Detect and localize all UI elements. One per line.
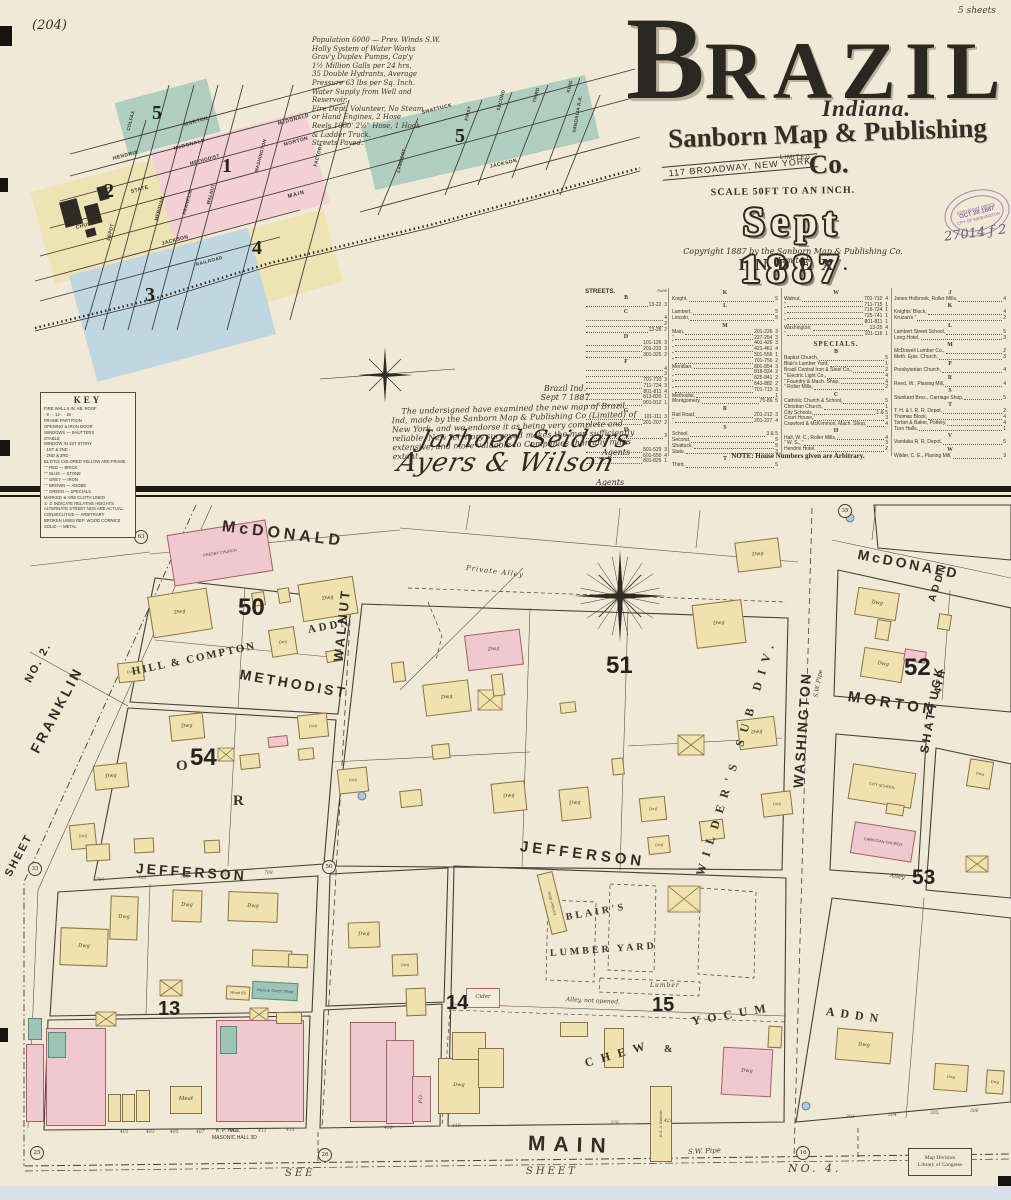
map-label: 409 (230, 1129, 239, 1134)
building: Dwg (109, 896, 139, 941)
building (399, 789, 423, 808)
building (204, 840, 221, 854)
building: Dwg (692, 599, 747, 649)
index-row: Jones Holbrook, Roller Mills,4 (894, 297, 1006, 303)
map-label: 54 (190, 744, 217, 772)
index-row: ” Roller Mills,2 (784, 385, 888, 391)
building: Dwg (491, 780, 528, 813)
map-label: 52 (904, 654, 931, 682)
building (406, 988, 427, 1017)
building (26, 1044, 44, 1122)
building (239, 753, 260, 770)
map-label: Lumber (650, 982, 680, 989)
index-row: SPECIALS. (784, 342, 888, 348)
building (28, 1018, 42, 1040)
building (267, 735, 288, 748)
building: Dwg (835, 1028, 894, 1065)
index-row: 13-28 2 (585, 328, 667, 334)
map-label: 709 (264, 871, 273, 876)
map-label: 50 (238, 594, 265, 622)
index-row: Stunkard Bros., Carriage Shop,5 (894, 396, 1006, 402)
map-label: 50 (322, 860, 336, 874)
building: Dwg (647, 835, 671, 855)
building: P.O. (412, 1076, 431, 1122)
index-divider (781, 288, 782, 456)
map-label: 320 (610, 1121, 619, 1126)
library-stamp-box: Map DivisionLibrary of Congress (908, 1148, 972, 1176)
index-row: Reed, W., Planing Mill,4 (894, 382, 1006, 388)
index-column-3: WWalnut,701-710 4”711-715 1”716-724 1”72… (784, 289, 888, 453)
building (122, 1094, 135, 1122)
map-label: 705 (180, 875, 189, 880)
building: Dwg (966, 758, 994, 789)
building (220, 1026, 237, 1054)
index-row: Kruzan's ”2 (894, 316, 1006, 322)
scan-backing-strip (0, 1186, 1011, 1200)
building: Meat (170, 1086, 202, 1114)
building (560, 1022, 588, 1037)
map-label: NO. 4. (788, 1162, 842, 1175)
scan-edge-mark (0, 178, 8, 192)
map-title: BRAZIL (626, 0, 1008, 121)
map-label: 407 (196, 1130, 205, 1135)
index-column-2: KKnight,5LLambert,5Lincoln,5MMain,201-22… (672, 289, 778, 469)
building: Paint & Carp't Shop (252, 981, 299, 1001)
building (937, 613, 952, 631)
map-label: 303 (846, 1115, 855, 1120)
map-label: 305 (930, 1111, 939, 1116)
map-label: 701 (96, 878, 105, 883)
map-label: 25 (30, 1146, 44, 1160)
building: Dwg (438, 1058, 480, 1114)
map-label: 418 (384, 1126, 393, 1131)
building (86, 843, 111, 861)
population-line: 35 Double Hydrants, Average (300, 70, 520, 79)
population-line: Fire Dept. Volunteer, No Steam (300, 105, 520, 114)
building: Dwg (422, 679, 472, 716)
building (134, 837, 155, 853)
building (767, 1026, 782, 1049)
building: Dwg (268, 626, 298, 658)
index-row: STREETS.PAGE (585, 289, 667, 295)
map-label: MAIN (528, 1132, 614, 1159)
map-label: O (176, 758, 188, 775)
building: Dwg (558, 787, 591, 822)
building (108, 1094, 121, 1122)
overview-label: 1 (222, 155, 232, 178)
population-line: Reservoir. (300, 96, 520, 105)
building (391, 661, 406, 682)
map-key-legend: KEY FIRE WALL 6 IN. AB. ROOF· 9 · · 12 ·… (40, 392, 136, 538)
building: Dwg (860, 647, 906, 683)
map-label: 15 (652, 994, 674, 1017)
building (386, 1040, 414, 1124)
building: Dwg (734, 537, 781, 572)
building: Wood Sh (226, 985, 251, 1000)
building (431, 743, 450, 760)
signature-2: Ayers & Wilson (394, 448, 617, 478)
building: Dwg (985, 1069, 1005, 1094)
map-label: SEE (285, 1168, 315, 1179)
index-row: ”201-227 4 (672, 419, 778, 425)
map-label: S.W. Pipe (688, 1146, 721, 1156)
building (136, 1090, 150, 1122)
overview-label: 3 (145, 284, 155, 307)
building (48, 1032, 66, 1058)
building: Dwg (93, 762, 129, 790)
population-line: Population 6000 — Prev. Winds S.W. (300, 36, 520, 45)
key-row: SOLID — METAL (44, 524, 132, 530)
map-label: 306 (970, 1109, 979, 1114)
building (478, 1048, 504, 1088)
map-label: 411 (258, 1129, 267, 1134)
building: Dwg (464, 629, 524, 672)
map-label: SHEET (526, 1166, 578, 1177)
building: Dwg (169, 712, 206, 741)
map-label: 403 (146, 1130, 155, 1135)
overview-label: 5 (152, 102, 162, 125)
building: Dwg (721, 1047, 773, 1098)
map-label: 33 (28, 862, 42, 876)
index-row: Knight,5 (672, 297, 778, 303)
scan-edge-mark (0, 1028, 8, 1042)
map-label: MASONIC HALL 3D (212, 1135, 257, 1141)
population-notes: Population 6000 — Prev. Winds S.W.Holly … (300, 36, 520, 148)
page-reference: (204) (32, 18, 67, 33)
population-line: Streets Paved. (300, 139, 520, 148)
population-line: Water Supply from Well and (300, 88, 520, 97)
index-row: Lincoln,5 (672, 316, 778, 322)
building: Dwg (639, 796, 667, 823)
building: Dwg (297, 712, 329, 739)
index-row: 13-22 3 (585, 303, 667, 309)
population-line: Pressure 63 lbs per Sq. Inch. (300, 79, 520, 88)
building: D.G. & Notions (650, 1086, 672, 1162)
sanborn-map-sheet: (204) 5 sheets Population 6000 — Prev. W… (0, 0, 1011, 1200)
building (252, 949, 293, 967)
building: Dwg (227, 891, 278, 923)
index-row: F (585, 360, 667, 366)
population-line: Holly System of Water Works (300, 45, 520, 54)
map-label: R (233, 793, 244, 810)
population-line: 1½ Million Galls per 24 hrs, (300, 62, 520, 71)
building: Dwg (59, 927, 108, 967)
building: Dwg (171, 889, 202, 922)
index-row: C (585, 310, 667, 316)
building (277, 587, 291, 604)
index-row: Third,5 (672, 463, 778, 469)
title-initial: B (626, 0, 705, 118)
map-label: 405 (170, 1130, 179, 1135)
overview-label: 5 (455, 125, 465, 148)
overview-label: 4 (252, 237, 262, 260)
certificate-place: Brazil Ind.Sept 7 1887 (500, 384, 630, 402)
map-label: 707 (222, 873, 231, 878)
building (276, 1012, 302, 1024)
index-column-specials: JJones Holbrook, Roller Mills,4KKnights'… (894, 289, 1006, 460)
index-row: Presbyterian Church,4 (894, 368, 1006, 374)
building: Dwg (392, 954, 419, 977)
population-line: Grav'y Duplex Pumps, Cap'y (300, 53, 520, 62)
index-row: Crawford & McKimmon, Mach. Shop,4 (784, 422, 888, 428)
building: Dwg (348, 921, 381, 948)
index-row: Montgomery,75-86 5 (672, 399, 778, 405)
building: Dwg (337, 767, 369, 795)
population-line: Reels 1000' 2½" Hose, 1 Hook (300, 122, 520, 131)
map-label: 63 (134, 530, 148, 544)
map-label: 14 (446, 992, 468, 1015)
map-label: 304 (888, 1113, 897, 1118)
map-label: 51 (606, 652, 633, 680)
building (611, 757, 625, 775)
building: Cider (466, 988, 500, 1008)
building (491, 673, 506, 696)
index-row: Turn Halls,1 (894, 427, 1006, 433)
population-line: or Hand Engines, 2 Hose (300, 113, 520, 122)
index-row: Vandalia R. R. Depot,5 (894, 440, 1006, 446)
map-label: 35 (838, 504, 852, 518)
map-label: 419 (452, 1124, 461, 1129)
scan-edge-mark (0, 26, 12, 46)
index-divider (668, 288, 669, 456)
index-title: INDEX. (585, 255, 1011, 275)
index-row: Long Hotel,3 (894, 336, 1006, 342)
index-divider (891, 288, 892, 456)
building (559, 701, 576, 714)
map-label: 26 (318, 1148, 332, 1162)
building (297, 747, 314, 761)
map-label: 16 (796, 1146, 810, 1160)
population-line: & Ladder Truck. (300, 131, 520, 140)
index-row: K (672, 291, 778, 297)
map-label: 703 (138, 876, 147, 881)
scan-edge-mark (0, 440, 10, 456)
divider-rule-thick (0, 486, 1011, 492)
key-title: KEY (44, 395, 132, 405)
map-label: 13 (158, 998, 180, 1021)
index-row: 301-325 2 (585, 353, 667, 359)
map-label: 401 (120, 1130, 129, 1135)
building (288, 954, 308, 969)
overview-label: 2 (104, 180, 114, 203)
building: Dwg (933, 1063, 969, 1092)
map-label: 415 (286, 1128, 295, 1133)
map-label: 53 (912, 866, 935, 890)
map-label: 421 (664, 1119, 673, 1124)
map-label: & (664, 1044, 672, 1055)
index-row: ”101-116 1 (784, 332, 888, 338)
divider-rule-thin (0, 495, 1011, 497)
building: Dwg (761, 790, 794, 817)
index-note: NOTE: House Numbers given are Arbitrary. (585, 452, 1011, 460)
index-row: Meth. Epis. Church,3 (894, 355, 1006, 361)
map-date: Sept 1887 (700, 198, 885, 292)
